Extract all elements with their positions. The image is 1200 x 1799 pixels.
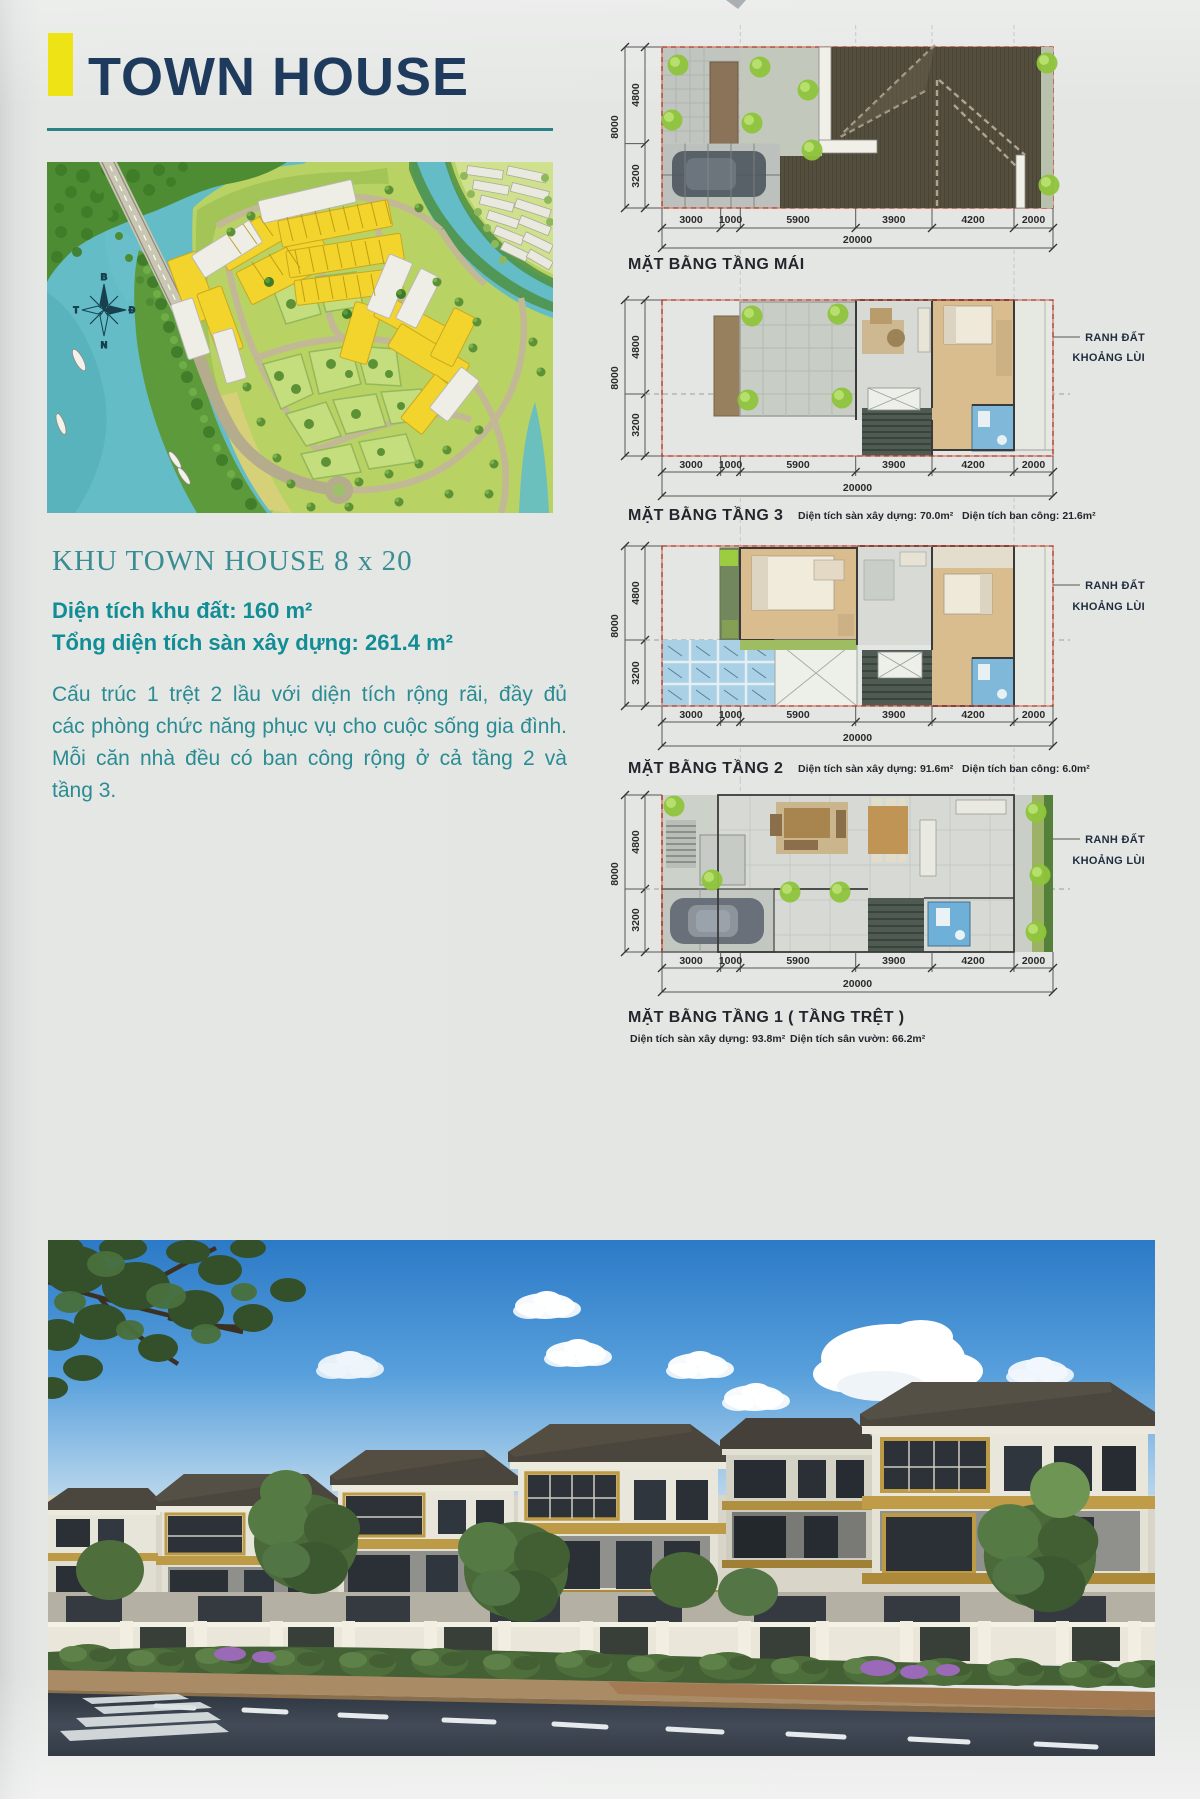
- svg-text:3000: 3000: [679, 709, 703, 721]
- svg-text:Diện tích ban công: 21.6m²: Diện tích ban công: 21.6m²: [962, 510, 1096, 522]
- svg-text:1000: 1000: [719, 709, 743, 721]
- svg-text:3200: 3200: [630, 661, 642, 685]
- svg-text:Diện tích sân vườn: 66.2m²: Diện tích sân vườn: 66.2m²: [790, 1033, 926, 1045]
- svg-text:20000: 20000: [843, 978, 872, 990]
- svg-text:8000: 8000: [609, 366, 621, 390]
- svg-text:2000: 2000: [1022, 709, 1046, 721]
- svg-text:3900: 3900: [882, 459, 906, 471]
- svg-text:20000: 20000: [843, 732, 872, 744]
- svg-text:MẶT BẰNG TẦNG MÁI: MẶT BẰNG TẦNG MÁI: [628, 254, 805, 273]
- svg-text:4200: 4200: [961, 459, 985, 471]
- svg-text:5900: 5900: [786, 709, 810, 721]
- svg-text:20000: 20000: [843, 234, 872, 246]
- svg-text:4200: 4200: [961, 709, 985, 721]
- svg-text:1000: 1000: [719, 955, 743, 967]
- svg-text:3000: 3000: [679, 955, 703, 967]
- svg-text:3200: 3200: [630, 164, 642, 188]
- svg-text:1000: 1000: [719, 459, 743, 471]
- svg-text:MẶT BẰNG TẦNG 1 ( TẦNG TRỆT ): MẶT BẰNG TẦNG 1 ( TẦNG TRỆT ): [628, 1007, 904, 1026]
- svg-text:B: B: [101, 272, 108, 282]
- svg-text:Đ: Đ: [129, 305, 136, 315]
- svg-text:4800: 4800: [630, 581, 642, 605]
- svg-text:RANH ĐẤT: RANH ĐẤT: [1085, 579, 1145, 592]
- svg-text:20000: 20000: [843, 482, 872, 494]
- svg-text:3000: 3000: [679, 214, 703, 226]
- svg-text:3900: 3900: [882, 709, 906, 721]
- svg-text:3200: 3200: [630, 908, 642, 932]
- svg-text:MẶT BẰNG TẦNG 3: MẶT BẰNG TẦNG 3: [628, 505, 783, 524]
- svg-text:3000: 3000: [679, 459, 703, 471]
- svg-text:8000: 8000: [609, 862, 621, 886]
- svg-text:4800: 4800: [630, 335, 642, 359]
- svg-text:5900: 5900: [786, 214, 810, 226]
- svg-text:RANH ĐẤT: RANH ĐẤT: [1085, 833, 1145, 846]
- svg-text:Diện tích ban công: 6.0m²: Diện tích ban công: 6.0m²: [962, 763, 1090, 775]
- svg-text:4800: 4800: [630, 830, 642, 854]
- svg-text:MẶT BẰNG TẦNG 2: MẶT BẰNG TẦNG 2: [628, 758, 783, 777]
- svg-text:3900: 3900: [882, 214, 906, 226]
- svg-text:Diện tích sàn xây dựng: 91.6m²: Diện tích sàn xây dựng: 91.6m²: [798, 763, 954, 775]
- svg-text:T: T: [73, 305, 79, 315]
- svg-text:2000: 2000: [1022, 214, 1046, 226]
- svg-text:Diện tích sàn xây dựng: 93.8m²: Diện tích sàn xây dựng: 93.8m²: [630, 1033, 786, 1045]
- svg-text:5900: 5900: [786, 955, 810, 967]
- svg-text:8000: 8000: [609, 115, 621, 139]
- svg-text:4200: 4200: [961, 214, 985, 226]
- svg-text:Diện tích sàn xây dựng: 70.0m²: Diện tích sàn xây dựng: 70.0m²: [798, 510, 954, 522]
- svg-text:2000: 2000: [1022, 459, 1046, 471]
- svg-text:2000: 2000: [1022, 955, 1046, 967]
- svg-text:4200: 4200: [961, 955, 985, 967]
- svg-text:KHOẢNG LÙI: KHOẢNG LÙI: [1072, 854, 1145, 867]
- svg-text:5900: 5900: [786, 459, 810, 471]
- svg-text:3200: 3200: [630, 413, 642, 437]
- svg-text:4800: 4800: [630, 83, 642, 107]
- svg-text:RANH ĐẤT: RANH ĐẤT: [1085, 331, 1145, 344]
- svg-text:3900: 3900: [882, 955, 906, 967]
- svg-text:8000: 8000: [609, 614, 621, 638]
- svg-text:N: N: [101, 340, 108, 350]
- svg-text:1000: 1000: [719, 214, 743, 226]
- svg-text:KHOẢNG LÙI: KHOẢNG LÙI: [1072, 600, 1145, 613]
- svg-text:KHOẢNG LÙI: KHOẢNG LÙI: [1072, 351, 1145, 364]
